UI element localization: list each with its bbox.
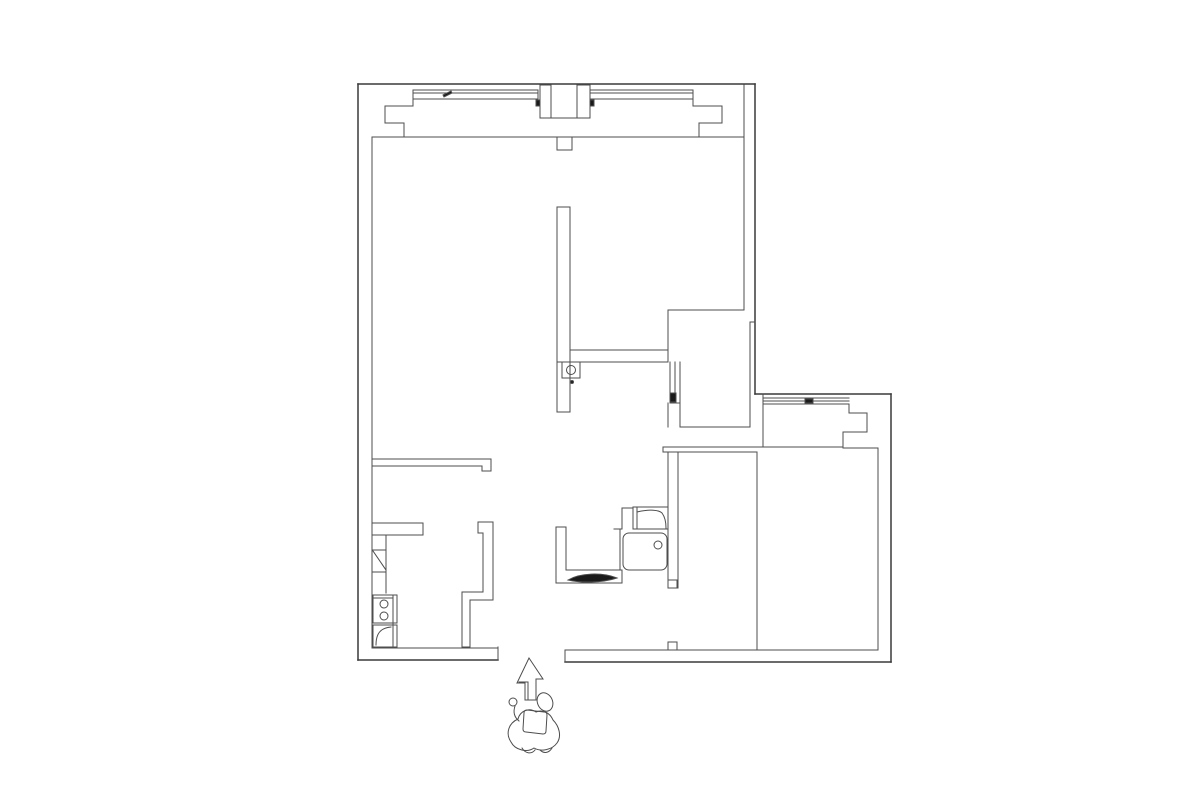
wall-fixture-dot <box>571 381 574 384</box>
wing-window-tick <box>805 399 813 403</box>
entry-wall-stub <box>668 642 677 650</box>
shower-drain <box>654 541 662 549</box>
kitchen-sink-basin <box>376 627 391 645</box>
person-box <box>523 710 547 734</box>
floor-plan-svg <box>0 0 1200 800</box>
entry-arrow-fold <box>519 682 528 700</box>
window2-jamb <box>693 99 722 137</box>
entry-arrow <box>517 658 543 700</box>
kitchen-burner-top <box>380 600 388 608</box>
window1-jamb <box>385 99 413 137</box>
window-pier-tick-right <box>590 100 594 106</box>
slide-track-stop <box>670 393 676 402</box>
kitchen-burner-bottom <box>380 612 388 620</box>
threshold-lens <box>568 574 617 582</box>
window1-tick <box>443 91 452 97</box>
window-pier-tick-left <box>536 100 540 106</box>
bedroom1-west-wall <box>557 207 570 412</box>
wall-fixture-circle <box>567 366 576 375</box>
bath-door-leaf <box>637 510 666 528</box>
hall-partition-wall <box>462 522 493 647</box>
wing-window-step <box>843 404 867 448</box>
person-body <box>508 710 559 751</box>
window-pier-left <box>540 85 551 118</box>
wall-fixture-box <box>562 362 580 378</box>
bath-east-wall-tab <box>668 580 677 588</box>
shower-tray <box>623 533 667 570</box>
person-hand <box>509 698 517 706</box>
wall-stub-center <box>557 137 572 150</box>
kitchen-cabinet-diagonal <box>373 551 386 570</box>
window-pier-right <box>577 85 590 118</box>
floor-plan-page <box>0 0 1200 800</box>
person-head <box>534 690 556 714</box>
